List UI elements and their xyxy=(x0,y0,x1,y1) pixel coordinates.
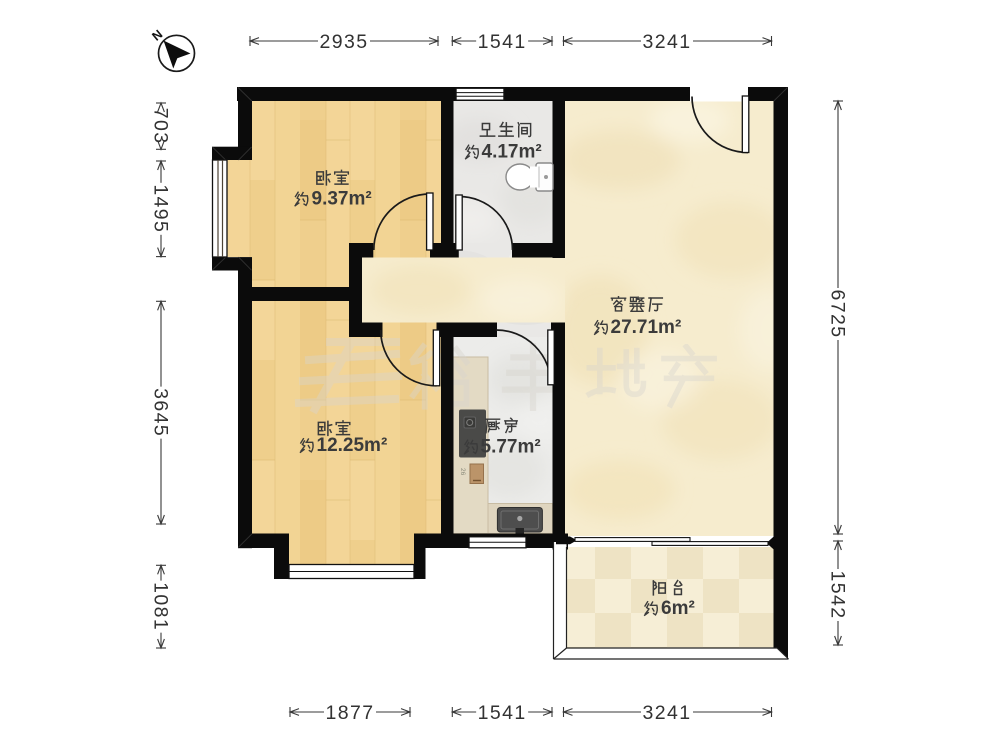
svg-text:1541: 1541 xyxy=(478,31,527,53)
svg-text:1081: 1081 xyxy=(150,582,172,631)
svg-text:1542: 1542 xyxy=(827,571,849,620)
svg-text:2935: 2935 xyxy=(320,31,369,53)
svg-text:1877: 1877 xyxy=(326,702,375,724)
svg-text:9.37m²: 9.37m² xyxy=(312,189,372,210)
svg-text:3241: 3241 xyxy=(643,702,692,724)
svg-text:5.77m²: 5.77m² xyxy=(481,437,541,458)
svg-text:6725: 6725 xyxy=(827,290,849,339)
svg-text:3645: 3645 xyxy=(150,388,172,437)
svg-text:12.25m²: 12.25m² xyxy=(317,435,388,456)
svg-text:27.71m²: 27.71m² xyxy=(611,317,682,338)
svg-text:3241: 3241 xyxy=(643,31,692,53)
svg-text:26: 26 xyxy=(459,468,466,476)
svg-text:1541: 1541 xyxy=(478,702,527,724)
svg-text:4.17m²: 4.17m² xyxy=(482,142,542,163)
svg-text:6m²: 6m² xyxy=(661,598,695,619)
svg-text:1495: 1495 xyxy=(150,184,172,233)
svg-text:703: 703 xyxy=(150,108,172,145)
